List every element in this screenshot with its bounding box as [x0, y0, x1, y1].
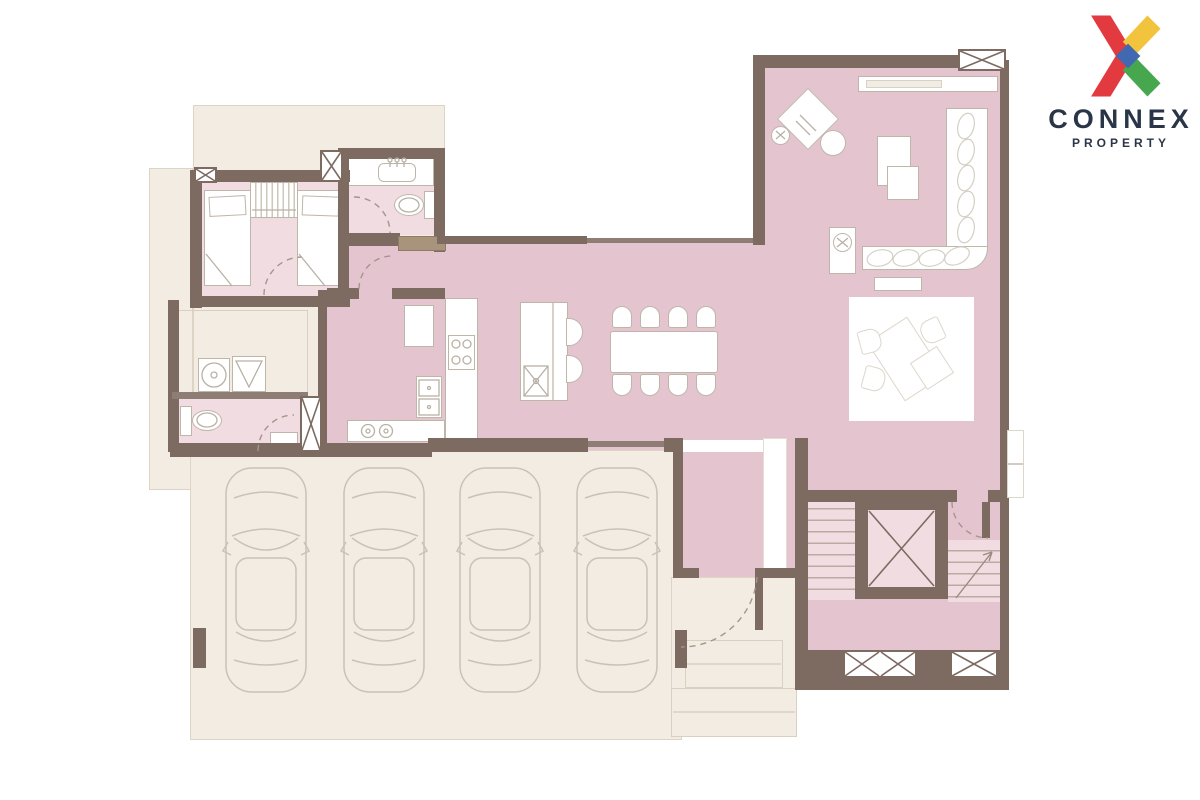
ac-unit: [1007, 430, 1024, 498]
bed-pillow-2: [302, 195, 340, 216]
window-living-corner: [958, 49, 1006, 71]
wall-bedroom-left: [190, 170, 202, 308]
toilet1-bowl: [394, 194, 424, 216]
cooktop-4-burner: [448, 335, 475, 370]
dining-chair: [696, 306, 716, 328]
kitchen-double-sink: [416, 376, 442, 418]
staircase-right: [948, 540, 1000, 602]
staircase-left: [808, 498, 855, 600]
sofa-horizontal: [862, 246, 988, 270]
foyer-partition: [763, 438, 787, 578]
kitchen-island: [520, 302, 568, 401]
window-bedroom-corner: [194, 167, 217, 183]
brand-name: CONNEX: [1048, 105, 1194, 133]
coffee-table-2: [887, 166, 919, 200]
washer: [198, 358, 230, 392]
dining-chair: [612, 306, 632, 328]
entry-step-lower: [671, 688, 797, 737]
floor-plan: CONNEX PROPERTY: [0, 0, 1200, 800]
wardrobe: [250, 182, 298, 218]
tv-panel: [866, 80, 942, 88]
wall-kitchen-bottom: [428, 438, 588, 452]
wall-main-top-window: [587, 238, 753, 243]
wall-stair-door-stub: [982, 502, 990, 538]
brand-tagline: PROPERTY: [1048, 136, 1194, 150]
connex-logo: CONNEX PROPERTY: [1048, 12, 1194, 150]
wall-main-top-a: [437, 236, 587, 244]
wall-elevator-top: [862, 498, 940, 510]
kitchen-cabinet: [404, 305, 434, 347]
plant-pot: [833, 233, 852, 252]
wall-living-left: [753, 55, 765, 245]
wall-frontdoor-a: [673, 568, 699, 578]
toilet2-bowl: [192, 410, 222, 431]
wall-elevator-left: [855, 498, 868, 599]
wall-foyer-left: [673, 440, 683, 577]
wall-kitchen-top-a: [327, 288, 359, 299]
wall-bathroom1-top: [338, 148, 445, 159]
floor-lamp: [771, 126, 790, 145]
kitchen-counter-right: [445, 298, 478, 443]
garage-post: [193, 628, 206, 668]
dining-chair: [640, 374, 660, 396]
dryer: [232, 356, 266, 392]
window-stair-south-b: [950, 650, 998, 678]
side-table-round: [820, 130, 846, 156]
window-bathroom1: [320, 150, 343, 182]
wall-elevator-right: [935, 498, 948, 599]
wall-kitchen-top-b: [392, 288, 445, 299]
wall-bathroom1-bottom: [345, 233, 400, 246]
car-3: [456, 464, 544, 696]
wall-foyer-stub: [755, 577, 763, 630]
dining-chair: [696, 374, 716, 396]
wall-elevator-bottom: [862, 587, 940, 599]
threshold-foyer: [683, 440, 763, 452]
dining-chair: [668, 374, 688, 396]
wall-laundry-left: [168, 300, 179, 452]
wall-stair-left: [795, 438, 808, 690]
dining-chair: [668, 306, 688, 328]
island-divider: [552, 303, 554, 400]
bed-pillow-1: [209, 195, 247, 217]
wall-right: [1000, 60, 1009, 688]
car-4: [573, 464, 661, 696]
car-2: [340, 464, 428, 696]
toilet2-tank: [180, 406, 192, 436]
shaft-bathroom2: [300, 396, 322, 452]
window-stair-south-a: [843, 650, 917, 678]
dining-chair: [640, 306, 660, 328]
vanity-sink: [378, 163, 416, 182]
connex-x-icon: [1075, 12, 1167, 100]
wall-dining-bottom-window: [588, 441, 666, 447]
dining-table: [610, 331, 718, 373]
wall-stair-top-b: [988, 490, 1002, 502]
sofa-console: [874, 277, 922, 291]
elevator-cab: [868, 510, 935, 587]
porch-post: [675, 630, 687, 668]
dining-chair: [612, 374, 632, 396]
car-1: [222, 464, 310, 696]
wall-laundry-divider: [172, 392, 308, 399]
wall-living-top: [753, 55, 960, 68]
entry-step-upper: [685, 640, 783, 688]
